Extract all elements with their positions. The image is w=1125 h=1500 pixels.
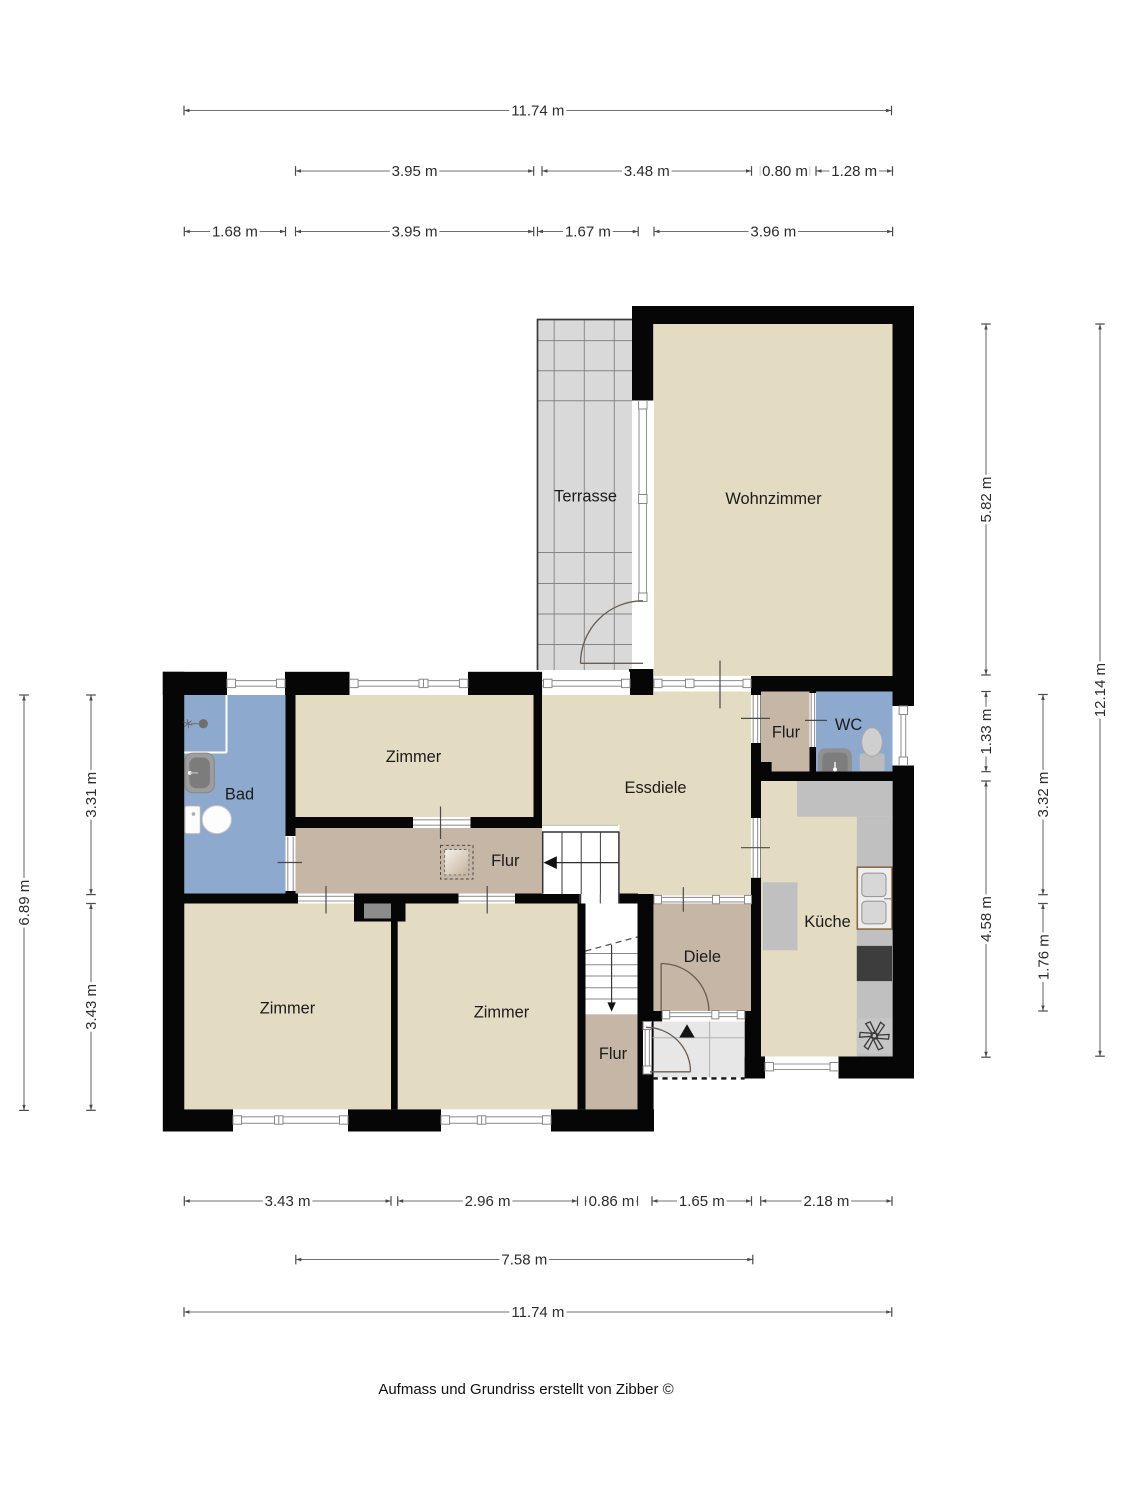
- svg-text:5.82 m: 5.82 m: [978, 477, 995, 523]
- svg-text:Küche: Küche: [804, 913, 850, 931]
- svg-text:2.96 m: 2.96 m: [465, 1193, 511, 1210]
- svg-text:Zimmer: Zimmer: [260, 1000, 316, 1018]
- svg-text:3.95 m: 3.95 m: [392, 163, 438, 180]
- svg-text:Wohnzimmer: Wohnzimmer: [725, 490, 822, 508]
- svg-text:11.74 m: 11.74 m: [511, 1304, 564, 1321]
- svg-text:3.31 m: 3.31 m: [83, 772, 100, 818]
- svg-text:12.14 m: 12.14 m: [1092, 663, 1109, 717]
- svg-text:Diele: Diele: [684, 948, 721, 966]
- svg-text:Flur: Flur: [772, 724, 801, 742]
- svg-text:1.28 m: 1.28 m: [831, 163, 877, 180]
- svg-text:3.32 m: 3.32 m: [1035, 772, 1052, 818]
- svg-text:0.80 m: 0.80 m: [762, 163, 808, 180]
- svg-text:1.67 m: 1.67 m: [565, 224, 611, 241]
- svg-text:Flur: Flur: [599, 1045, 628, 1063]
- svg-text:3.43 m: 3.43 m: [83, 984, 100, 1030]
- svg-text:11.74 m: 11.74 m: [511, 103, 564, 120]
- svg-text:3.95 m: 3.95 m: [392, 224, 438, 241]
- svg-text:Terrasse: Terrasse: [554, 488, 617, 506]
- svg-text:3.48 m: 3.48 m: [624, 163, 670, 180]
- svg-text:6.89 m: 6.89 m: [16, 880, 33, 926]
- svg-text:1.65 m: 1.65 m: [679, 1193, 725, 1210]
- svg-text:WC: WC: [835, 716, 862, 734]
- svg-text:3.96 m: 3.96 m: [750, 224, 796, 241]
- svg-text:3.43 m: 3.43 m: [265, 1193, 311, 1210]
- svg-text:Essdiele: Essdiele: [625, 779, 687, 797]
- svg-text:7.58 m: 7.58 m: [501, 1252, 547, 1269]
- svg-text:1.68 m: 1.68 m: [212, 224, 258, 241]
- svg-text:Zimmer: Zimmer: [474, 1004, 530, 1022]
- svg-text:2.18 m: 2.18 m: [803, 1193, 849, 1210]
- svg-text:0.86 m: 0.86 m: [589, 1193, 635, 1210]
- svg-text:Flur: Flur: [491, 852, 520, 870]
- svg-text:Zimmer: Zimmer: [386, 748, 442, 766]
- svg-text:4.58 m: 4.58 m: [978, 896, 995, 942]
- svg-text:1.76 m: 1.76 m: [1035, 934, 1052, 980]
- svg-text:Aufmass und Grundriss erstellt: Aufmass und Grundriss erstellt von Zibbe…: [378, 1381, 673, 1398]
- svg-text:Bad: Bad: [225, 786, 254, 804]
- svg-text:1.33 m: 1.33 m: [978, 709, 995, 755]
